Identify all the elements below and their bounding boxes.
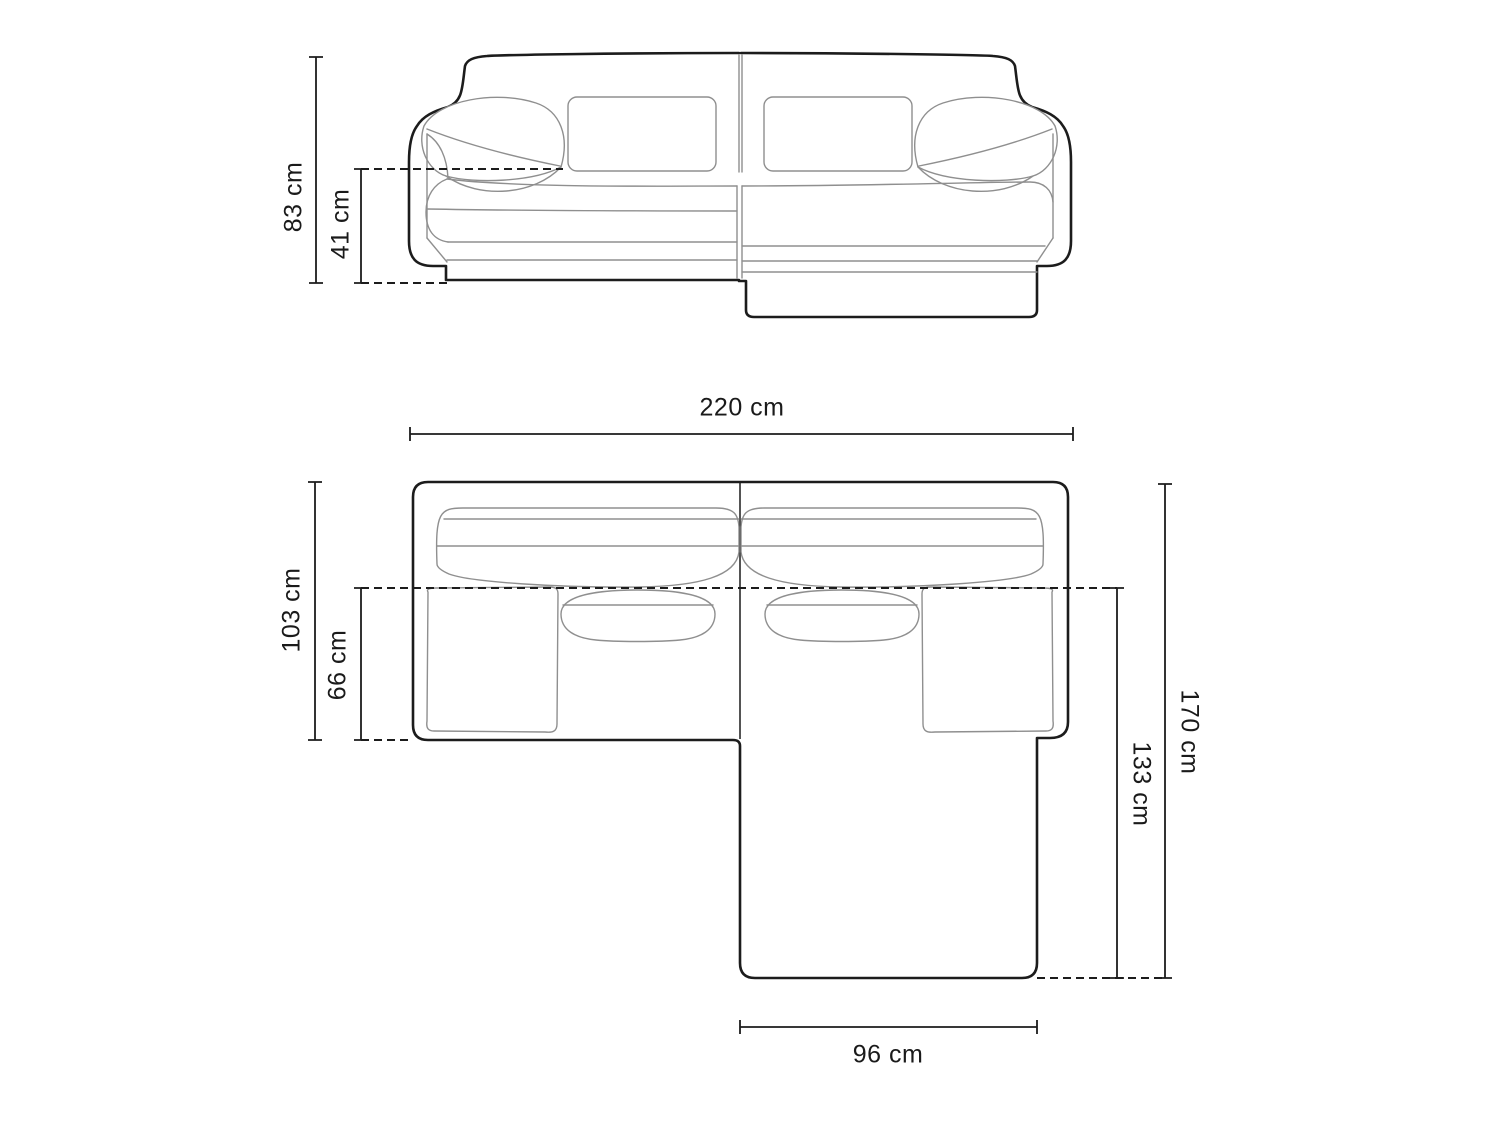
dim-line-chaise-depth: [1110, 588, 1124, 978]
dim-line-chaise-width: [740, 1020, 1037, 1034]
front-view-drawing: [409, 53, 1071, 317]
front-armrest-pillow-right: [915, 97, 1058, 180]
dim-label-depth: 103 cm: [280, 568, 305, 653]
dim-line-seat-depth: [354, 588, 368, 740]
dim-label-seat-depth: 66 cm: [326, 630, 351, 701]
dim-label-total-depth: 170 cm: [1177, 690, 1202, 775]
front-backrest-split: [739, 55, 742, 172]
dim-label-chaise-depth: 133 cm: [1129, 742, 1154, 827]
dim-line-seat-height: [354, 169, 368, 283]
dim-label-height: 83 cm: [282, 162, 307, 233]
front-back-cushion-right: [764, 97, 912, 171]
dim-label-seat-height: 41 cm: [329, 189, 354, 260]
front-back-cushion-left: [568, 97, 716, 171]
dim-line-depth: [308, 482, 322, 740]
top-backrest-right: [741, 508, 1043, 587]
front-right-silhouette: [739, 53, 1071, 317]
diagram-drawing: [0, 0, 1500, 1125]
dim-label-chaise-width: 96 cm: [853, 1043, 924, 1068]
dim-line-total-depth: [1158, 484, 1172, 978]
dim-line-height: [309, 57, 323, 283]
top-seat-cushion-right: [765, 590, 919, 642]
sofa-dimension-diagram: 83 cm 41 cm 220 cm 103 cm 66 cm 170 cm 1…: [0, 0, 1500, 1125]
top-view-drawing: [413, 482, 1068, 978]
top-backrest-left: [437, 508, 739, 587]
dim-line-width: [410, 427, 1073, 441]
top-armrest-pillow-right: [922, 587, 1053, 732]
dim-label-width: 220 cm: [700, 396, 785, 421]
top-armrest-pillow-left: [427, 587, 558, 732]
top-seat-cushion-left: [561, 590, 715, 642]
